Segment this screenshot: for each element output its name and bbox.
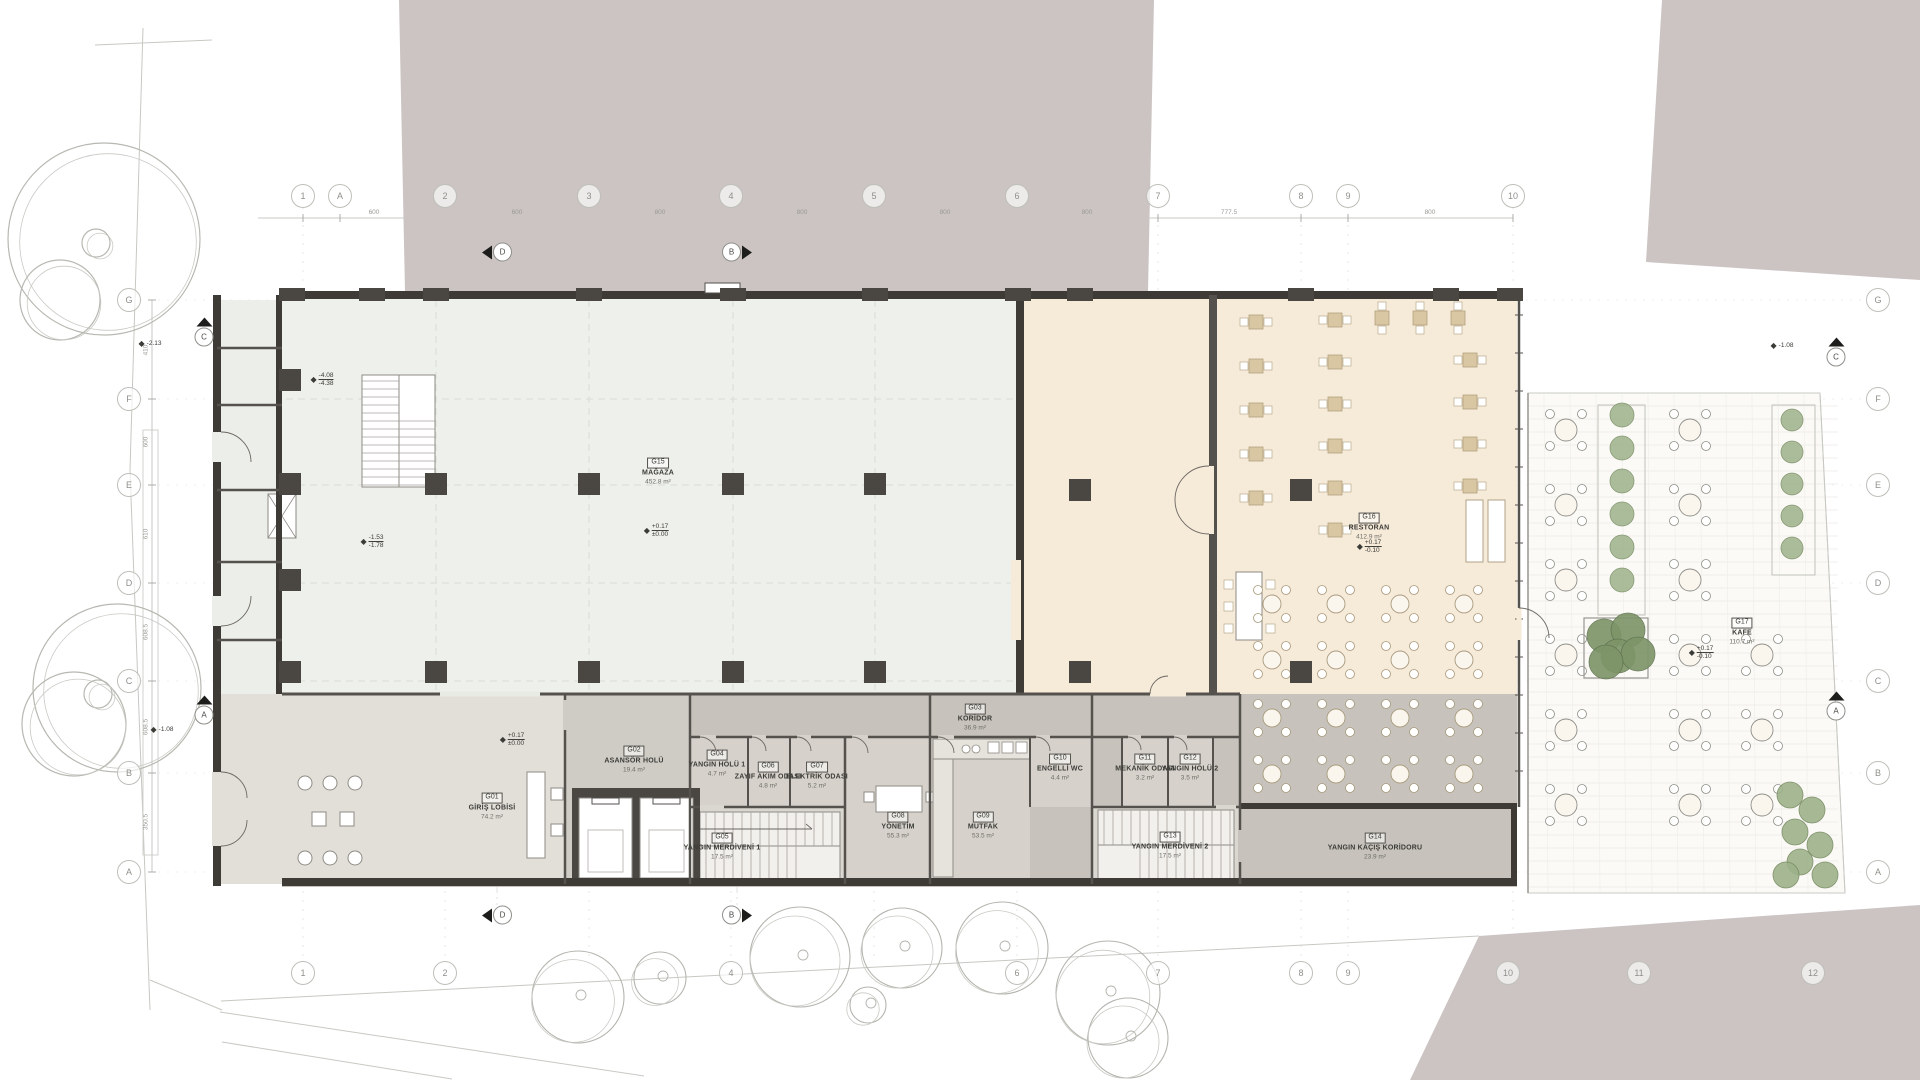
grid-bubble-top-5: 5	[862, 184, 886, 208]
room-name: GİRİŞ LOBİSİ	[469, 805, 516, 814]
room-area: 53.5 m²	[968, 832, 998, 840]
grid-bubble-top-2: 2	[433, 184, 457, 208]
section-marker-d: D	[482, 243, 512, 262]
room-name: YANGIN MERDİVENİ 2	[1132, 844, 1209, 853]
room-code: G15	[647, 458, 668, 469]
room-name: YÖNETİM	[881, 824, 914, 833]
room-area: 19.4 m²	[604, 766, 663, 774]
elevation-diamond-icon: ◆	[644, 527, 650, 535]
room-name: ELEKTRİK ODASI	[786, 774, 848, 783]
section-letter: B	[722, 243, 741, 262]
elevation-value: -4.08	[319, 372, 334, 380]
grid-bubble-bottom-4: 4	[719, 961, 743, 985]
room-name: YANGIN HOLÜ 2	[1162, 766, 1219, 775]
dimension-label: 600	[512, 209, 523, 216]
section-letter: C	[1827, 348, 1846, 367]
section-marker-b: B	[722, 243, 752, 262]
elevation-marker: ◆-4.08-4.38	[311, 372, 334, 388]
plan-annotations: G01GİRİŞ LOBİSİ74.2 m²G02ASANSÖR HOLÜ19.…	[0, 0, 1920, 1080]
room-area: 5.2 m²	[786, 782, 848, 790]
room-code: G09	[972, 812, 993, 823]
grid-bubble-bottom-10: 10	[1496, 961, 1520, 985]
section-marker-a: A	[195, 696, 214, 725]
grid-bubble-left-C: C	[117, 669, 141, 693]
section-arrow-icon	[196, 318, 212, 327]
dimension-label: 800	[655, 209, 666, 216]
section-marker-a: A	[1827, 692, 1846, 721]
room-code: G01	[481, 793, 502, 804]
section-letter: A	[195, 706, 214, 725]
room-area: 3.5 m²	[1162, 774, 1219, 782]
room-code: G16	[1358, 513, 1379, 524]
elevation-value: -0.10	[1697, 654, 1713, 661]
room-area: 452.8 m²	[642, 478, 674, 486]
section-letter: D	[493, 906, 512, 925]
room-code: G17	[1731, 618, 1752, 629]
grid-bubble-top-4: 4	[719, 184, 743, 208]
room-area: 55.3 m²	[881, 832, 914, 840]
elevation-diamond-icon: ◆	[361, 538, 367, 546]
room-name: YANGIN MERDİVENİ 1	[684, 845, 761, 854]
room-label-g12: G12YANGIN HOLÜ 23.5 m²	[1162, 746, 1219, 783]
grid-bubble-top-1: 1	[291, 184, 315, 208]
grid-bubble-bottom-7: 7	[1146, 961, 1170, 985]
section-arrow-icon	[742, 908, 752, 922]
grid-bubble-bottom-8: 8	[1289, 961, 1313, 985]
room-name: MUTFAK	[968, 824, 998, 833]
dimension-label: 800	[940, 209, 951, 216]
elevation-diamond-icon: ◆	[500, 736, 506, 744]
section-arrow-icon	[1828, 692, 1844, 701]
grid-bubble-right-F: F	[1866, 387, 1890, 411]
elevation-diamond-icon: ◆	[1357, 543, 1363, 551]
room-name: YANGIN KAÇIŞ KORİDORU	[1328, 845, 1423, 854]
elevation-value: -1.08	[159, 726, 174, 733]
room-code: G06	[757, 762, 778, 773]
grid-bubble-top-A: A	[328, 184, 352, 208]
room-name: MAĞAZA	[642, 470, 674, 479]
dimension-label: 608.5	[143, 719, 150, 735]
grid-bubble-bottom-6: 6	[1005, 961, 1029, 985]
grid-bubble-top-10: 10	[1501, 184, 1525, 208]
elevation-value: -1.08	[1779, 342, 1794, 349]
dimension-label: 777.5	[1221, 209, 1237, 216]
elevation-value: -1.53	[369, 534, 384, 542]
grid-bubble-left-E: E	[117, 473, 141, 497]
room-area: 36.9 m²	[958, 724, 992, 732]
section-arrow-icon	[196, 696, 212, 705]
room-name: ENGELLİ WC	[1037, 766, 1083, 775]
room-label-g15: G15MAĞAZA452.8 m²	[642, 450, 674, 487]
room-code: G02	[623, 746, 644, 757]
elevation-value: +0.17	[652, 523, 668, 531]
grid-bubble-top-9: 9	[1336, 184, 1360, 208]
room-code: G14	[1364, 833, 1385, 844]
room-code: G05	[711, 833, 732, 844]
elevation-value: ±0.00	[652, 532, 668, 539]
room-code: G10	[1049, 754, 1070, 765]
room-label-g07: G07ELEKTRİK ODASI5.2 m²	[786, 754, 848, 791]
elevation-marker: ◆-2.13	[139, 340, 162, 348]
elevation-value: -0.10	[1365, 548, 1381, 555]
room-label-g03: G03KORİDOR36.9 m²	[958, 696, 992, 733]
dimension-label: 610	[143, 529, 150, 540]
elevation-value: -1.78	[369, 543, 384, 550]
elevation-value: +0.17	[1697, 645, 1713, 653]
elevation-marker: ◆+0.17±0.00	[500, 732, 525, 748]
dimension-label: 800	[1425, 209, 1436, 216]
room-name: KAFE	[1729, 630, 1754, 639]
section-arrow-icon	[482, 245, 492, 259]
section-marker-d: D	[482, 906, 512, 925]
grid-bubble-top-6: 6	[1005, 184, 1029, 208]
section-letter: D	[493, 243, 512, 262]
room-code: G12	[1179, 754, 1200, 765]
room-label-g09: G09MUTFAK53.5 m²	[968, 804, 998, 841]
grid-bubble-top-8: 8	[1289, 184, 1313, 208]
grid-bubble-bottom-11: 11	[1627, 961, 1651, 985]
elevation-diamond-icon: ◆	[1771, 342, 1777, 350]
room-area: 4.4 m²	[1037, 774, 1083, 782]
elevation-diamond-icon: ◆	[311, 376, 317, 384]
section-marker-c: C	[195, 318, 214, 347]
section-arrow-icon	[1828, 338, 1844, 347]
floor-plan-canvas: G01GİRİŞ LOBİSİ74.2 m²G02ASANSÖR HOLÜ19.…	[0, 0, 1920, 1080]
room-label-g10: G10ENGELLİ WC4.4 m²	[1037, 746, 1083, 783]
room-label-g02: G02ASANSÖR HOLÜ19.4 m²	[604, 738, 663, 775]
elevation-diamond-icon: ◆	[151, 726, 157, 734]
dimension-label: 600	[369, 209, 380, 216]
room-name: KORİDOR	[958, 716, 992, 725]
room-label-g01: G01GİRİŞ LOBİSİ74.2 m²	[469, 785, 516, 822]
grid-bubble-bottom-2: 2	[433, 961, 457, 985]
grid-bubble-right-G: G	[1866, 288, 1890, 312]
section-letter: A	[1827, 702, 1846, 721]
grid-bubble-left-A: A	[117, 860, 141, 884]
section-arrow-icon	[482, 908, 492, 922]
room-area: 17.5 m²	[684, 853, 761, 861]
elevation-value: +0.17	[1365, 539, 1381, 547]
grid-bubble-left-F: F	[117, 387, 141, 411]
dimension-label: 608.5	[143, 624, 150, 640]
section-marker-b: B	[722, 906, 752, 925]
elevation-marker: ◆+0.17±0.00	[644, 523, 669, 539]
section-letter: C	[195, 328, 214, 347]
grid-bubble-left-D: D	[117, 571, 141, 595]
grid-bubble-bottom-9: 9	[1336, 961, 1360, 985]
elevation-marker: ◆+0.17-0.10	[1689, 645, 1714, 661]
grid-bubble-bottom-1: 1	[291, 961, 315, 985]
dimension-label: 350.5	[143, 814, 150, 830]
elevation-marker: ◆-1.08	[1771, 342, 1794, 350]
grid-bubble-top-7: 7	[1146, 184, 1170, 208]
room-code: G04	[706, 750, 727, 761]
room-area: 23.9 m²	[1328, 853, 1423, 861]
section-arrow-icon	[742, 245, 752, 259]
grid-bubble-left-B: B	[117, 761, 141, 785]
room-area: 17.5 m²	[1132, 852, 1209, 860]
grid-bubble-right-D: D	[1866, 571, 1890, 595]
room-code: G13	[1159, 832, 1180, 843]
room-label-g05: G05YANGIN MERDİVENİ 117.5 m²	[684, 825, 761, 862]
elevation-value: -4.38	[319, 381, 334, 388]
room-name: RESTORAN	[1349, 525, 1390, 534]
room-code: G03	[964, 704, 985, 715]
grid-bubble-right-A: A	[1866, 860, 1890, 884]
room-area: 110.7 m²	[1729, 638, 1754, 646]
dimension-label: 600	[143, 437, 150, 448]
grid-bubble-bottom-12: 12	[1801, 961, 1825, 985]
elevation-marker: ◆-1.53-1.78	[361, 534, 384, 550]
section-marker-c: C	[1827, 338, 1846, 367]
dimension-label: 800	[1082, 209, 1093, 216]
elevation-diamond-icon: ◆	[139, 340, 145, 348]
room-label-g14: G14YANGIN KAÇIŞ KORİDORU23.9 m²	[1328, 825, 1423, 862]
grid-bubble-right-C: C	[1866, 669, 1890, 693]
room-area: 74.2 m²	[469, 813, 516, 821]
section-letter: B	[722, 906, 741, 925]
elevation-marker: ◆-1.08	[151, 726, 174, 734]
elevation-value: ±0.00	[508, 741, 524, 748]
grid-bubble-top-3: 3	[577, 184, 601, 208]
elevation-value: -2.13	[147, 340, 162, 347]
dimension-label: 800	[797, 209, 808, 216]
elevation-diamond-icon: ◆	[1689, 649, 1695, 657]
room-label-g08: G08YÖNETİM55.3 m²	[881, 804, 914, 841]
room-name: ASANSÖR HOLÜ	[604, 758, 663, 767]
grid-bubble-right-E: E	[1866, 473, 1890, 497]
elevation-value: +0.17	[508, 732, 524, 740]
room-code: G07	[806, 762, 827, 773]
room-code: G08	[887, 812, 908, 823]
room-label-g13: G13YANGIN MERDİVENİ 217.5 m²	[1132, 824, 1209, 861]
room-label-g16: G16RESTORAN412.9 m²	[1349, 505, 1390, 542]
grid-bubble-left-G: G	[117, 288, 141, 312]
elevation-marker: ◆+0.17-0.10	[1357, 539, 1382, 555]
room-label-g17: G17KAFE110.7 m²	[1729, 610, 1754, 647]
grid-bubble-right-B: B	[1866, 761, 1890, 785]
room-code: G11	[1135, 754, 1156, 765]
